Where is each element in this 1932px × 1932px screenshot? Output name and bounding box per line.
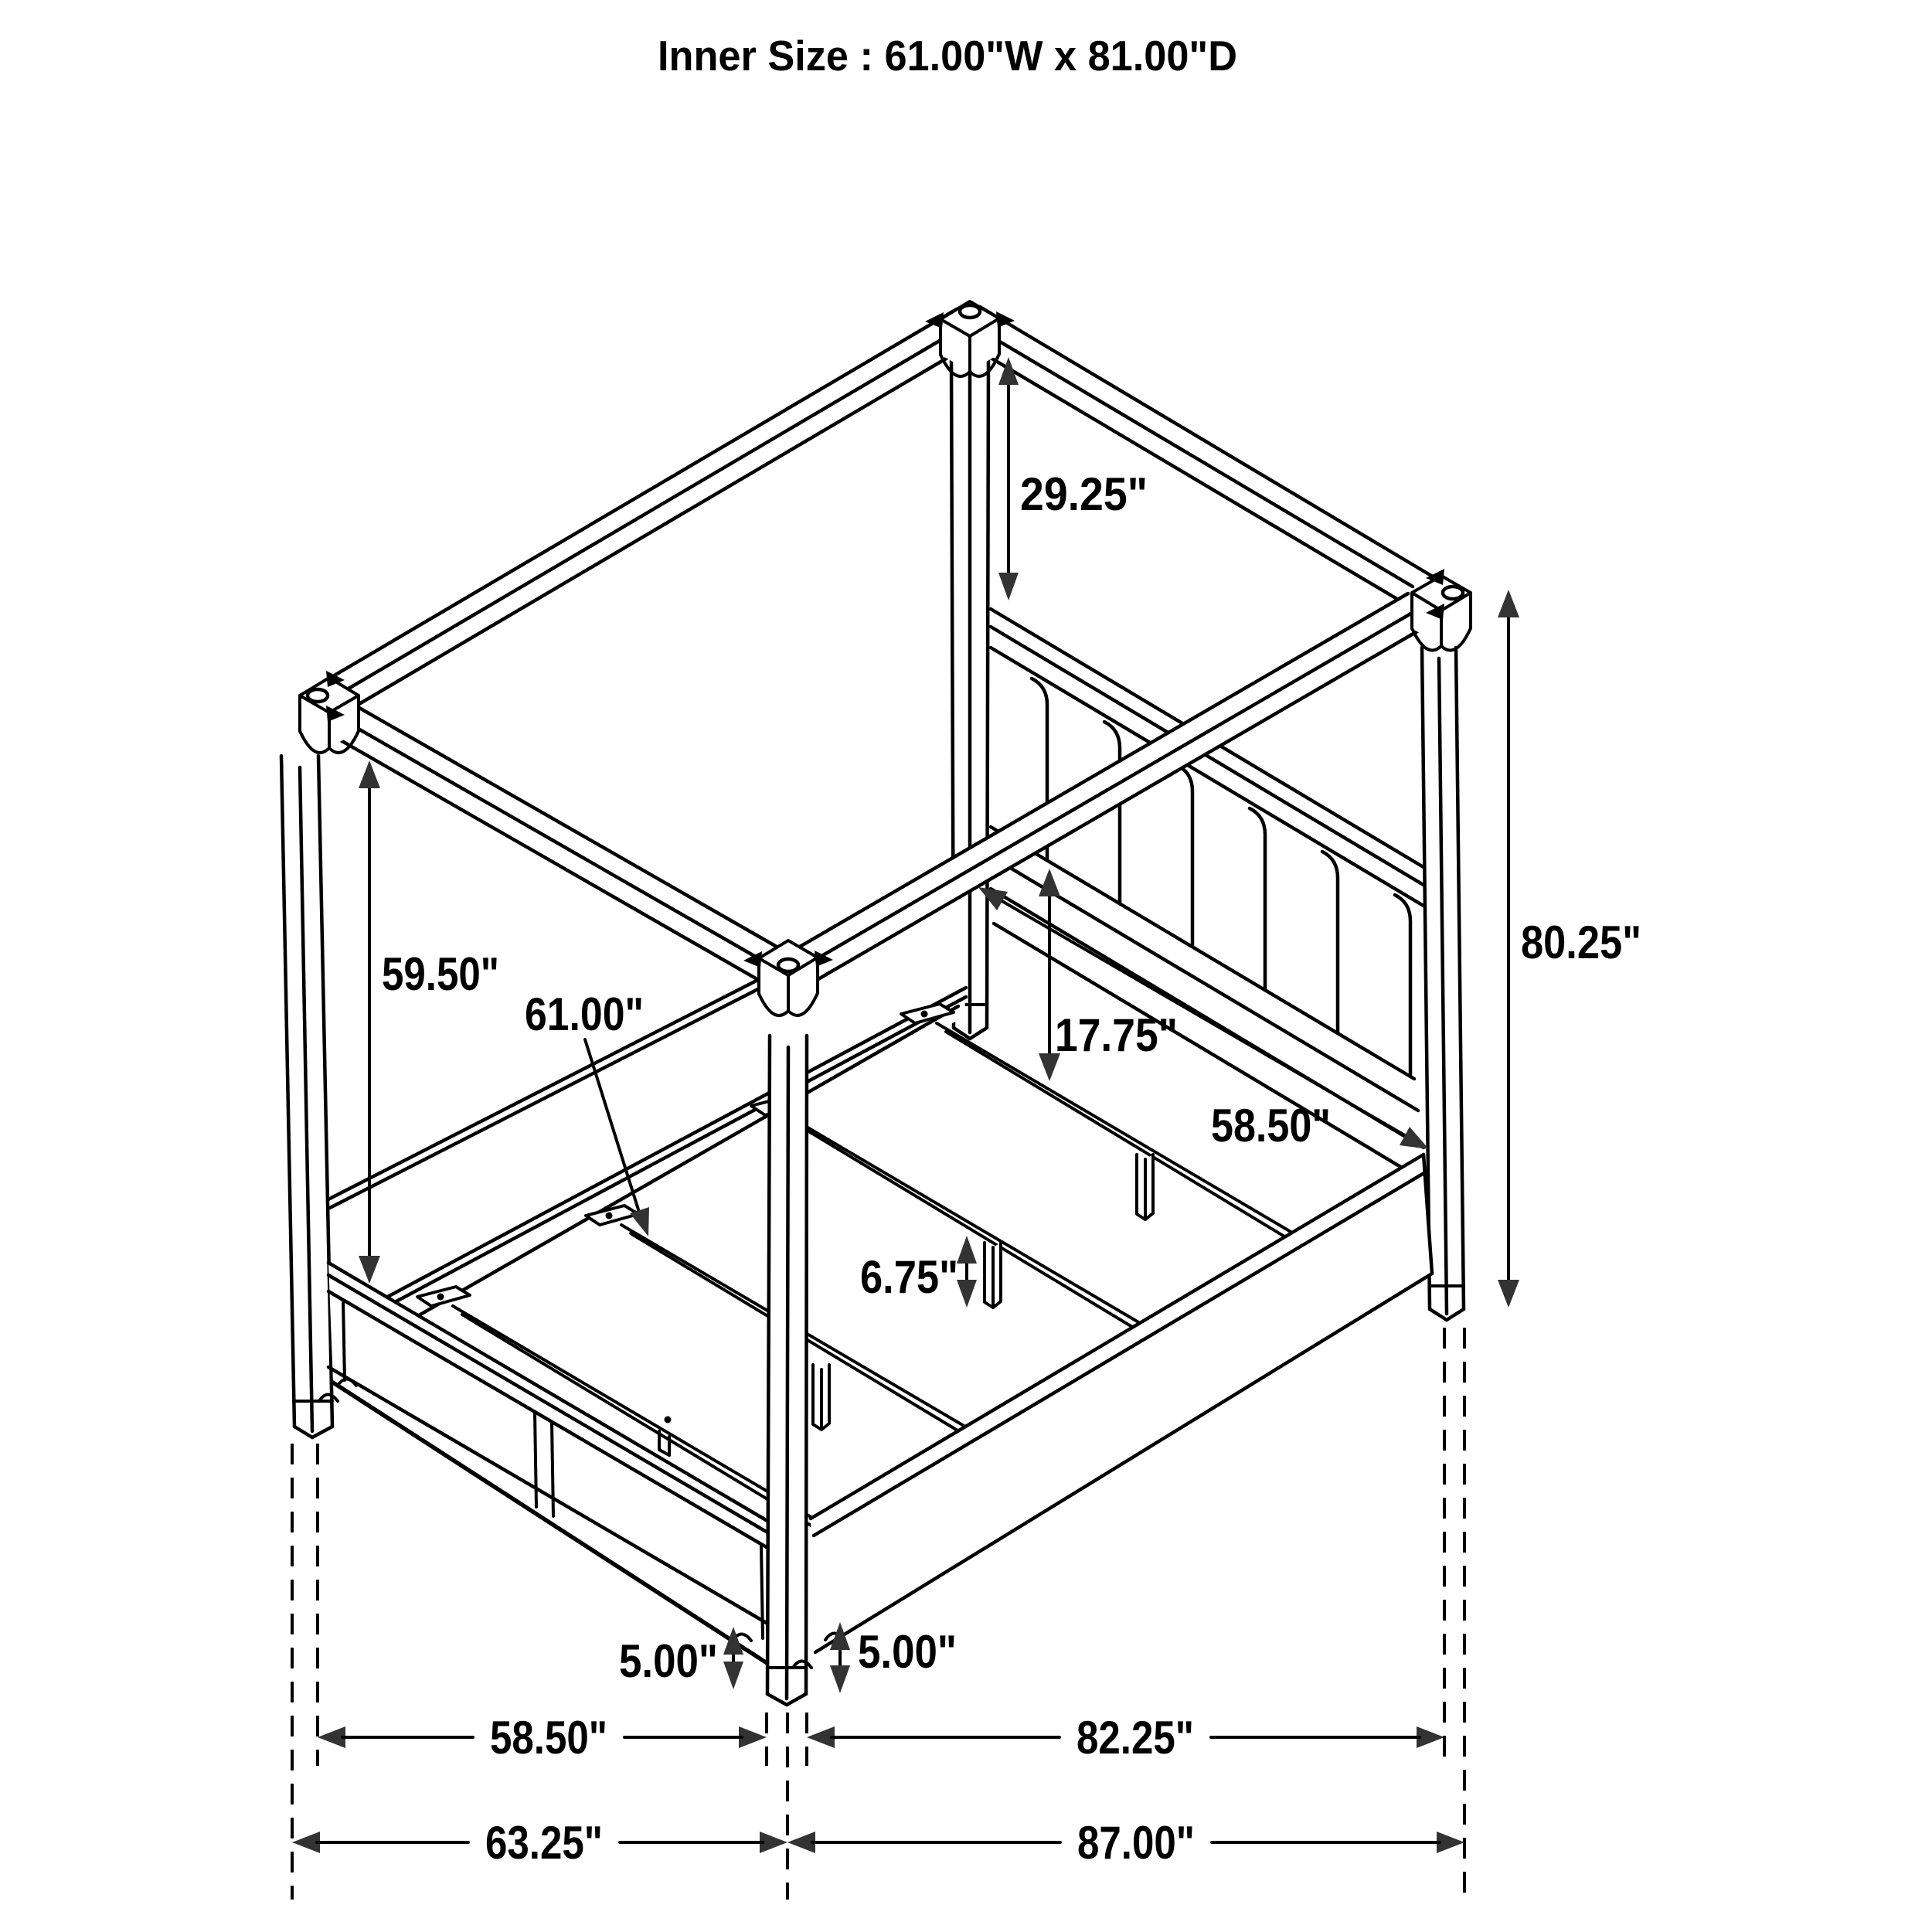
svg-text:5.00": 5.00" bbox=[858, 1626, 957, 1678]
svg-text:82.25": 82.25" bbox=[1077, 1712, 1194, 1764]
svg-text:80.25": 80.25" bbox=[1521, 917, 1641, 968]
svg-text:87.00": 87.00" bbox=[1077, 1817, 1195, 1869]
svg-text:6.75": 6.75" bbox=[860, 1251, 958, 1303]
svg-text:29.25": 29.25" bbox=[1020, 468, 1148, 520]
svg-text:Inner Size : 61.00"W x 81.00"D: Inner Size : 61.00"W x 81.00"D bbox=[658, 32, 1237, 80]
svg-text:17.75": 17.75" bbox=[1055, 1009, 1178, 1061]
svg-text:58.50": 58.50" bbox=[1211, 1100, 1331, 1151]
svg-text:63.25": 63.25" bbox=[485, 1817, 603, 1869]
svg-text:5.00": 5.00" bbox=[619, 1635, 718, 1687]
svg-text:59.50": 59.50" bbox=[382, 948, 499, 1000]
svg-text:61.00": 61.00" bbox=[525, 988, 644, 1040]
svg-text:58.50": 58.50" bbox=[490, 1712, 607, 1764]
